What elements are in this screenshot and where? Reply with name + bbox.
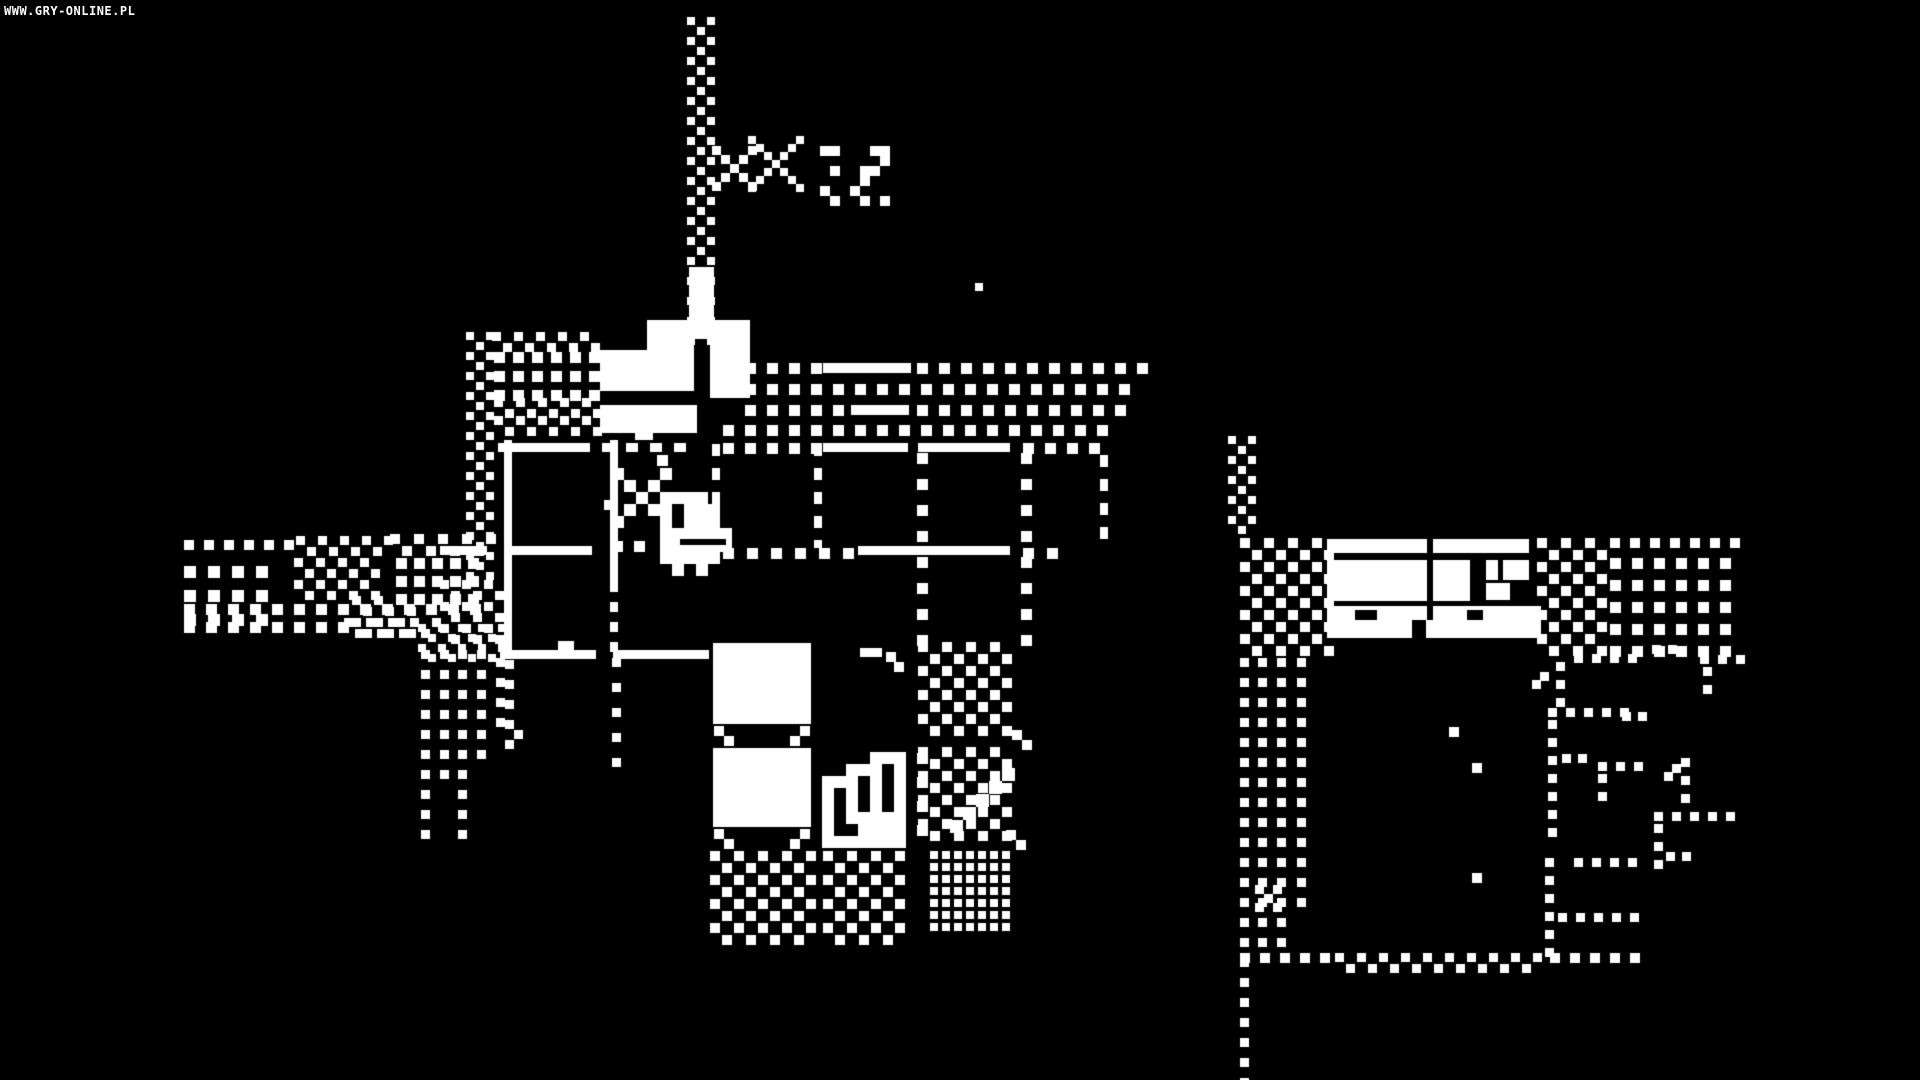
game-screen: WWW.GRY-ONLINE.PL: [0, 0, 1920, 1080]
watermark-text: WWW.GRY-ONLINE.PL: [4, 5, 135, 17]
game-scene-canvas[interactable]: [0, 0, 1920, 1080]
